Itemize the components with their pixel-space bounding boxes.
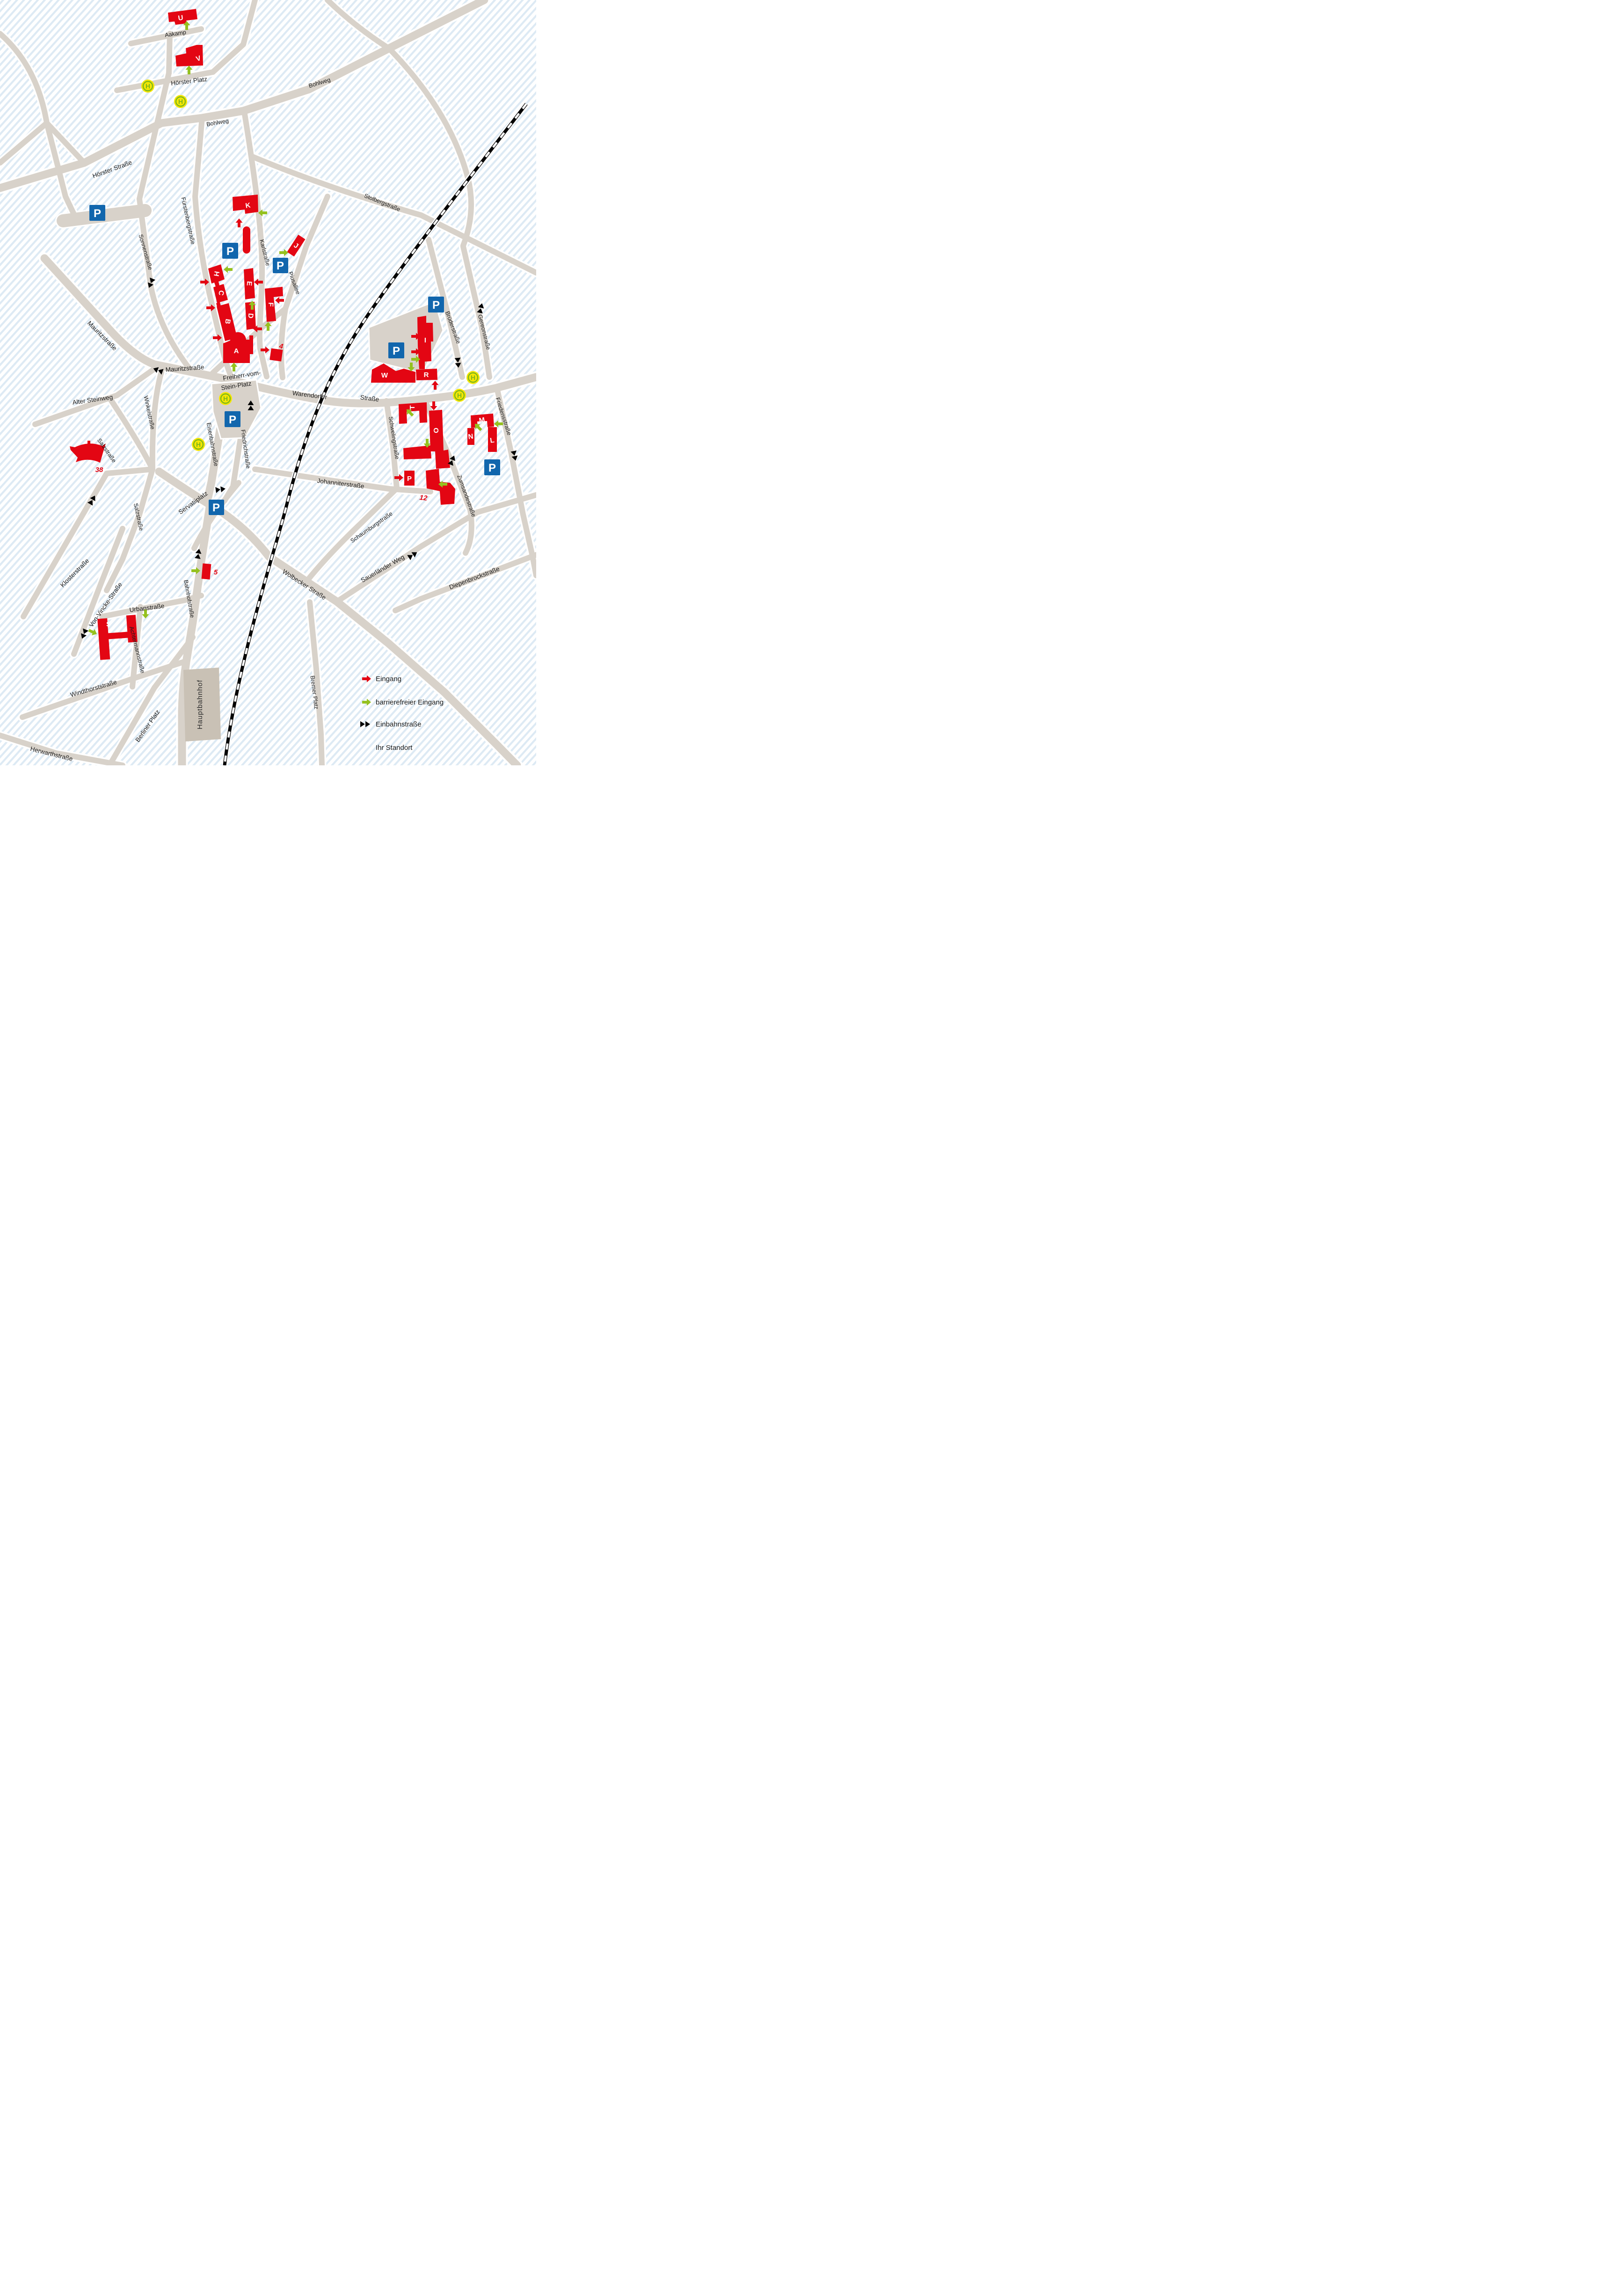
stop-letter: H: [146, 82, 150, 90]
stop-letter: H: [223, 395, 228, 402]
parking-letter: P: [226, 245, 234, 258]
building-label-T: T: [408, 405, 416, 409]
parking-icon: P: [484, 459, 500, 475]
hauptbahnhof-label: Hauptbahnhof: [196, 680, 204, 729]
bus-stop-icon: H: [192, 438, 205, 451]
parking-icon: P: [273, 258, 288, 273]
building-label-O: O: [432, 428, 440, 433]
stop-letter: H: [457, 392, 462, 399]
building-label-W: W: [381, 371, 388, 379]
parking-icon: P: [225, 411, 240, 427]
parking-letter: P: [432, 299, 440, 312]
campus-map: Hauptbahnhof A: [0, 0, 536, 765]
parking-letter: P: [277, 260, 284, 272]
legend-accessible-label: barrierefreier Eingang: [376, 698, 444, 706]
bus-stop-icon: H: [141, 80, 154, 93]
parking-icon: P: [89, 205, 105, 221]
parking-icon: P: [428, 297, 444, 312]
stop-letter: H: [196, 441, 201, 448]
building-label-38: 38: [95, 466, 103, 474]
building-K-annex: [243, 226, 250, 254]
bus-stop-icon: H: [453, 389, 466, 402]
parking-icon: P: [388, 342, 404, 358]
building-label-D: D: [247, 313, 255, 319]
legend-entrance-label: Eingang: [376, 675, 401, 683]
campus-map-page: Hauptbahnhof A: [0, 0, 536, 765]
building-label-R: R: [424, 371, 429, 379]
building-label-S: S: [106, 620, 111, 628]
map-hatch-pattern: [0, 0, 536, 765]
building-label-A: A: [234, 347, 239, 355]
stop-letter: H: [471, 374, 475, 381]
parking-letter: P: [229, 414, 236, 426]
building-label-F: F: [267, 302, 275, 307]
stop-letter: H: [178, 98, 183, 105]
parking-icon: P: [209, 500, 224, 515]
building-label-I: I: [424, 336, 426, 344]
parking-letter: P: [488, 462, 496, 474]
building-label-P: P: [407, 475, 412, 483]
bus-stop-icon: H: [219, 392, 232, 405]
legend-location-label: Ihr Standort: [376, 744, 413, 752]
bus-stop-icon: H: [174, 95, 187, 108]
parking-letter: P: [212, 501, 220, 514]
bus-stop-icon: H: [466, 371, 480, 384]
parking-letter: P: [393, 345, 400, 357]
building-5: [202, 563, 211, 579]
building-label-5: 5: [214, 568, 218, 576]
building-label-12: 12: [419, 494, 428, 502]
hauptbahnhof-building: Hauptbahnhof: [183, 668, 221, 741]
parking-letter: P: [94, 207, 101, 220]
parking-icon: P: [222, 243, 238, 259]
building-label-E: E: [245, 281, 254, 286]
legend-one-way-label: Einbahnstraße: [376, 720, 422, 728]
